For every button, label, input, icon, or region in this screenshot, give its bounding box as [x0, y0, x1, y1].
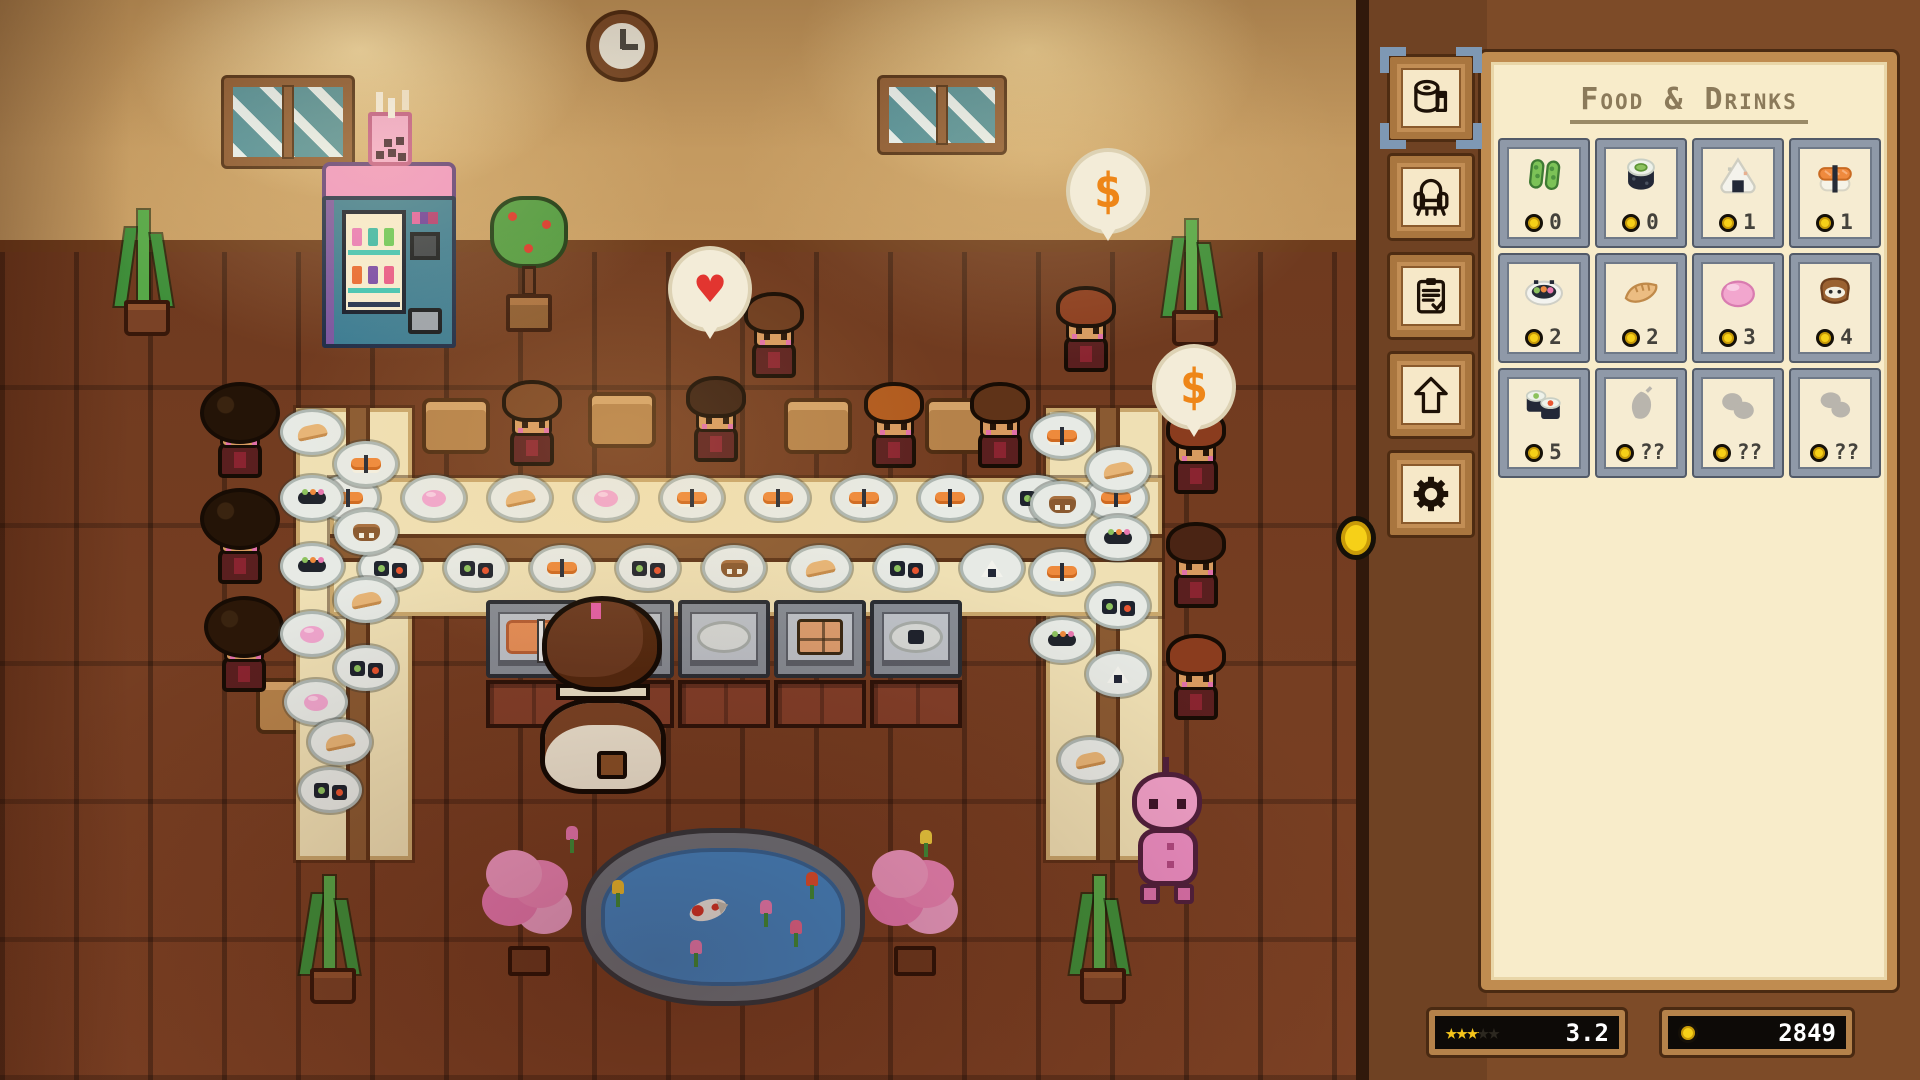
wall-clock-icon: [590, 14, 654, 78]
table: [784, 398, 852, 454]
coin-icon: [1816, 214, 1834, 232]
dollar-bubble-icon: $: [1066, 148, 1150, 234]
money-value: 2849: [1778, 1019, 1836, 1047]
mochi-icon: [594, 490, 618, 507]
window-right: [880, 78, 1004, 152]
nigiri-icon: [351, 458, 381, 470]
item-price: 0: [1646, 212, 1659, 233]
customer: [208, 392, 272, 486]
conveyor-plate: [788, 545, 852, 591]
maki-icon: [632, 561, 647, 576]
conveyor-plate: [1030, 617, 1094, 663]
item-price: 5: [1549, 442, 1562, 463]
potted-plant: [298, 854, 368, 1004]
conveyor-plate: [308, 719, 372, 765]
sushi-platter-icon: [1521, 268, 1567, 314]
nigiri-icon: [1101, 492, 1131, 504]
onigiri-icon: [981, 560, 1003, 577]
conveyor-plate: [702, 545, 766, 591]
maki-icon: [460, 561, 475, 576]
item-price: ??: [1834, 442, 1859, 463]
shop-item-onigiri[interactable]: 1: [1694, 140, 1782, 246]
nigiri-icon: [547, 562, 577, 574]
inari-icon: [353, 524, 380, 541]
locked-item-icon: [1715, 383, 1761, 429]
cabinet: [678, 680, 770, 728]
nigiri-icon: [763, 492, 793, 504]
inari-icon: [1049, 496, 1076, 513]
window-left: [224, 78, 352, 166]
shop-item-gyoza[interactable]: 2: [1597, 255, 1685, 361]
koi-pond: [586, 833, 860, 1001]
gear-icon: [1409, 472, 1453, 516]
coin-icon: [1816, 329, 1834, 347]
coin-icon: [1616, 444, 1634, 462]
coin-icon: [1719, 214, 1737, 232]
customer: [1054, 286, 1118, 380]
gyoza-icon: [504, 488, 536, 508]
clipboard-icon: [1409, 274, 1453, 318]
dollar-bubble-icon: $: [1152, 344, 1236, 430]
conveyor-plate: [280, 543, 344, 589]
gyoza-icon: [804, 558, 836, 578]
vending-buttons: [412, 212, 438, 224]
table: [422, 398, 490, 454]
locked-item-icon: [1618, 383, 1664, 429]
onigiri-icon: [1715, 153, 1761, 199]
star-rating-icon: ★★★★★ ★★★★★: [1445, 1022, 1498, 1043]
vending-window: [342, 210, 406, 314]
customer: [684, 376, 748, 470]
item-price: 2: [1549, 327, 1562, 348]
mochi-icon: [304, 694, 328, 711]
coin-icon: [1525, 329, 1543, 347]
game-screenshot: ♥ $ $: [0, 0, 1920, 1080]
conveyor-plate: [660, 475, 724, 521]
coin-icon: [1810, 444, 1828, 462]
panel-title: Food & Drinks: [1570, 82, 1807, 124]
conveyor-plate: [574, 475, 638, 521]
table: [588, 392, 656, 448]
sushi-icon: [298, 560, 326, 572]
shop-item-salmon-nigiri[interactable]: 1: [1791, 140, 1879, 246]
item-grid: 0 0 1: [1491, 140, 1887, 476]
empty-plate-icon: [697, 621, 751, 653]
conveyor-plate: [444, 545, 508, 591]
customer: [500, 380, 564, 474]
coin-icon: [1719, 329, 1737, 347]
shop-tabs: [1387, 54, 1483, 549]
customer: [968, 382, 1032, 476]
gyoza-icon: [1074, 750, 1106, 770]
tab-food-drinks[interactable]: [1387, 54, 1475, 142]
koi-fish-icon: [687, 895, 729, 926]
conveyor-plate: [1030, 481, 1094, 527]
item-price: ??: [1640, 442, 1665, 463]
gyoza-icon: [296, 422, 328, 442]
maki-icon: [350, 661, 365, 676]
nigiri-icon: [677, 492, 707, 504]
maki-icon: [890, 561, 905, 576]
coin-icon: [1713, 444, 1731, 462]
sushi-icon: [298, 492, 326, 504]
customer: [212, 606, 276, 700]
conveyor-plate: [918, 475, 982, 521]
mochi-icon: [422, 490, 446, 507]
edamame-icon: [1521, 153, 1567, 199]
gyoza-icon: [324, 732, 356, 752]
conveyor-plate: [402, 475, 466, 521]
conveyor-plate: [1058, 737, 1122, 783]
conveyor-plate: [280, 409, 344, 455]
item-price: ??: [1737, 442, 1762, 463]
chef-character: [534, 596, 672, 812]
rating-display: ★★★★★ ★★★★★ 3.2: [1429, 1010, 1625, 1055]
dollar-glyph: $: [1094, 167, 1123, 215]
customer: [862, 382, 926, 476]
vending-machine[interactable]: [322, 196, 456, 348]
conveyor-plate: [334, 441, 398, 487]
conveyor-plate: [334, 645, 398, 691]
mochi-icon: [300, 626, 324, 643]
item-price: 3: [1743, 327, 1756, 348]
salmon-nigiri-icon: [1812, 153, 1858, 199]
inari-icon: [721, 560, 748, 577]
shop-item-mochi[interactable]: 3: [1694, 255, 1782, 361]
bubble-tea-icon: [368, 112, 412, 166]
conveyor-plate: [960, 545, 1024, 591]
shop-item-locked[interactable]: ??: [1791, 370, 1879, 476]
shop-item-locked[interactable]: ??: [1597, 370, 1685, 476]
onigiri-icon: [1107, 666, 1129, 683]
pink-creature[interactable]: [1122, 756, 1216, 938]
conveyor-plate: [1030, 413, 1094, 459]
shop-panel: Food & Drinks 0 0: [1356, 0, 1920, 1080]
conveyor-plate: [874, 545, 938, 591]
rating-value: 3.2: [1566, 1019, 1609, 1047]
conveyor-plate: [1086, 651, 1150, 697]
maki-roll-icon: [1618, 153, 1664, 199]
cutting-board-icon: [797, 619, 843, 655]
potted-tree: [486, 196, 572, 348]
shop-item-locked[interactable]: ??: [1694, 370, 1782, 476]
shop-item-sushi-platter[interactable]: 2: [1500, 255, 1588, 361]
maki-icon: [314, 783, 329, 798]
coin-pickup[interactable]: [1336, 516, 1376, 560]
customer: [1164, 522, 1228, 616]
customer: [1164, 634, 1228, 728]
conveyor-plate: [1030, 549, 1094, 595]
nigiri-icon: [1047, 566, 1077, 578]
coin-icon: [1678, 1023, 1698, 1043]
prep-station[interactable]: [774, 600, 866, 678]
tab-tasks[interactable]: [1387, 252, 1475, 340]
item-price: 1: [1743, 212, 1756, 233]
vending-screen: [410, 232, 440, 260]
item-price: 2: [1646, 327, 1659, 348]
coin-icon: [1622, 214, 1640, 232]
customer: [742, 292, 806, 386]
conveyor-plate: [1086, 515, 1150, 561]
tab-furniture[interactable]: [1387, 153, 1475, 241]
conveyor-plate: [334, 577, 398, 623]
sakura-plant: [864, 846, 964, 976]
item-price: 4: [1840, 327, 1853, 348]
heart-bubble-icon: ♥: [668, 246, 752, 332]
locked-item-icon: [1812, 383, 1858, 429]
heart-glyph: ♥: [696, 266, 724, 312]
shop-item-maki-set[interactable]: 5: [1500, 370, 1588, 476]
conveyor-plate: [280, 611, 344, 657]
tab-settings[interactable]: [1387, 450, 1475, 538]
maki-set-icon: [1521, 383, 1567, 429]
mochi-icon: [1715, 268, 1761, 314]
conveyor-plate: [280, 475, 344, 521]
conveyor-plate: [334, 509, 398, 555]
potted-plant: [1160, 196, 1230, 346]
gyoza-icon: [350, 590, 382, 610]
conveyor-plate: [1086, 447, 1150, 493]
maki-icon: [374, 561, 389, 576]
gyoza-icon: [1102, 460, 1134, 480]
item-price: 0: [1549, 212, 1562, 233]
coin-icon: [1622, 329, 1640, 347]
gyoza-icon: [1618, 268, 1664, 314]
tab-upgrades[interactable]: [1387, 351, 1475, 439]
dollar-glyph: $: [1180, 363, 1209, 411]
inari-icon: [1812, 268, 1858, 314]
prep-station[interactable]: [870, 600, 962, 678]
nigiri-icon: [1047, 430, 1077, 442]
shop-board: Food & Drinks 0 0: [1481, 52, 1897, 990]
potted-plant: [112, 186, 182, 336]
shop-item-edamame[interactable]: 0: [1500, 140, 1588, 246]
armchair-icon: [1409, 175, 1453, 219]
money-display: 2849: [1662, 1010, 1852, 1055]
item-price: 1: [1840, 212, 1853, 233]
cabinet: [774, 680, 866, 728]
maki-icon: [1102, 599, 1117, 614]
shop-item-inari[interactable]: 4: [1791, 255, 1879, 361]
nigiri-icon: [935, 492, 965, 504]
sushi-icon: [1104, 532, 1132, 544]
paper-roll-icon: [1409, 76, 1453, 120]
conveyor-plate: [530, 545, 594, 591]
cabinet: [870, 680, 962, 728]
nigiri-icon: [849, 492, 879, 504]
conveyor-plate: [488, 475, 552, 521]
shop-item-maki-roll[interactable]: 0: [1597, 140, 1685, 246]
conveyor-plate: [298, 767, 362, 813]
conveyor-plate: [1086, 583, 1150, 629]
sakura-plant: [478, 846, 578, 976]
coin-icon: [1525, 214, 1543, 232]
maki-plate-icon: [889, 621, 943, 653]
conveyor-plate: [616, 545, 680, 591]
vending-dispenser: [408, 308, 442, 334]
prep-station[interactable]: [678, 600, 770, 678]
sushi-icon: [1048, 634, 1076, 646]
conveyor-plate: [832, 475, 896, 521]
coin-icon: [1525, 444, 1543, 462]
customer: [208, 498, 272, 592]
conveyor-plate: [746, 475, 810, 521]
up-arrow-icon: [1409, 373, 1453, 417]
vending-machine-top: [322, 162, 456, 200]
